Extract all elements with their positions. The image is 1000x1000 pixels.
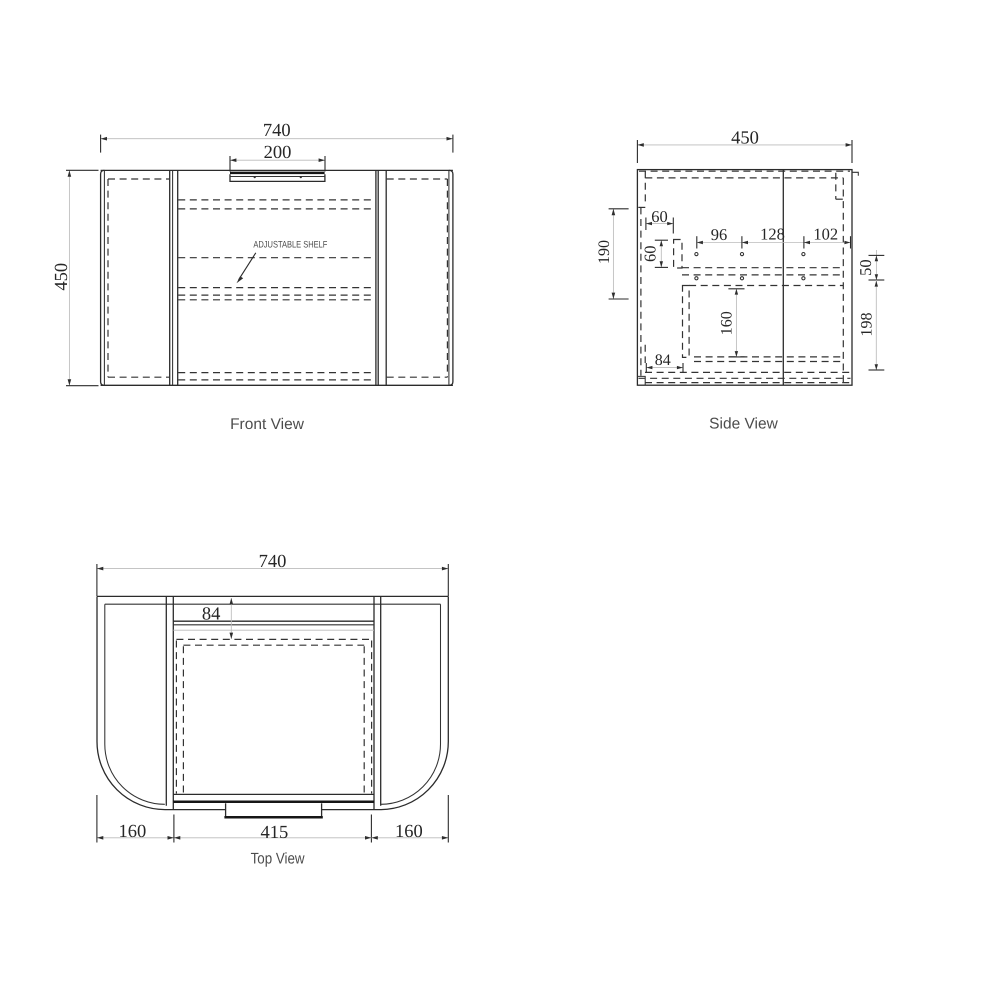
svg-text:740: 740 [263,121,291,141]
svg-text:160: 160 [395,822,423,842]
svg-text:200: 200 [264,143,292,163]
svg-text:Top View: Top View [251,850,306,867]
svg-text:84: 84 [202,605,221,625]
svg-text:198: 198 [859,313,876,337]
svg-text:190: 190 [596,240,613,264]
svg-text:60: 60 [641,245,660,262]
svg-text:740: 740 [259,552,287,572]
svg-text:102: 102 [813,225,838,244]
svg-text:ADJUSTABLE SHELF: ADJUSTABLE SHELF [253,240,327,251]
svg-text:450: 450 [52,263,72,291]
svg-text:450: 450 [731,129,759,149]
svg-text:Side View: Side View [709,416,778,433]
svg-text:128: 128 [760,225,785,244]
svg-text:160: 160 [119,822,147,842]
svg-text:50: 50 [856,259,875,276]
svg-text:Front View: Front View [230,416,305,433]
svg-text:415: 415 [261,823,289,843]
svg-text:96: 96 [711,225,728,244]
svg-text:160: 160 [718,311,735,335]
svg-text:84: 84 [655,352,671,369]
svg-text:60: 60 [651,207,668,226]
